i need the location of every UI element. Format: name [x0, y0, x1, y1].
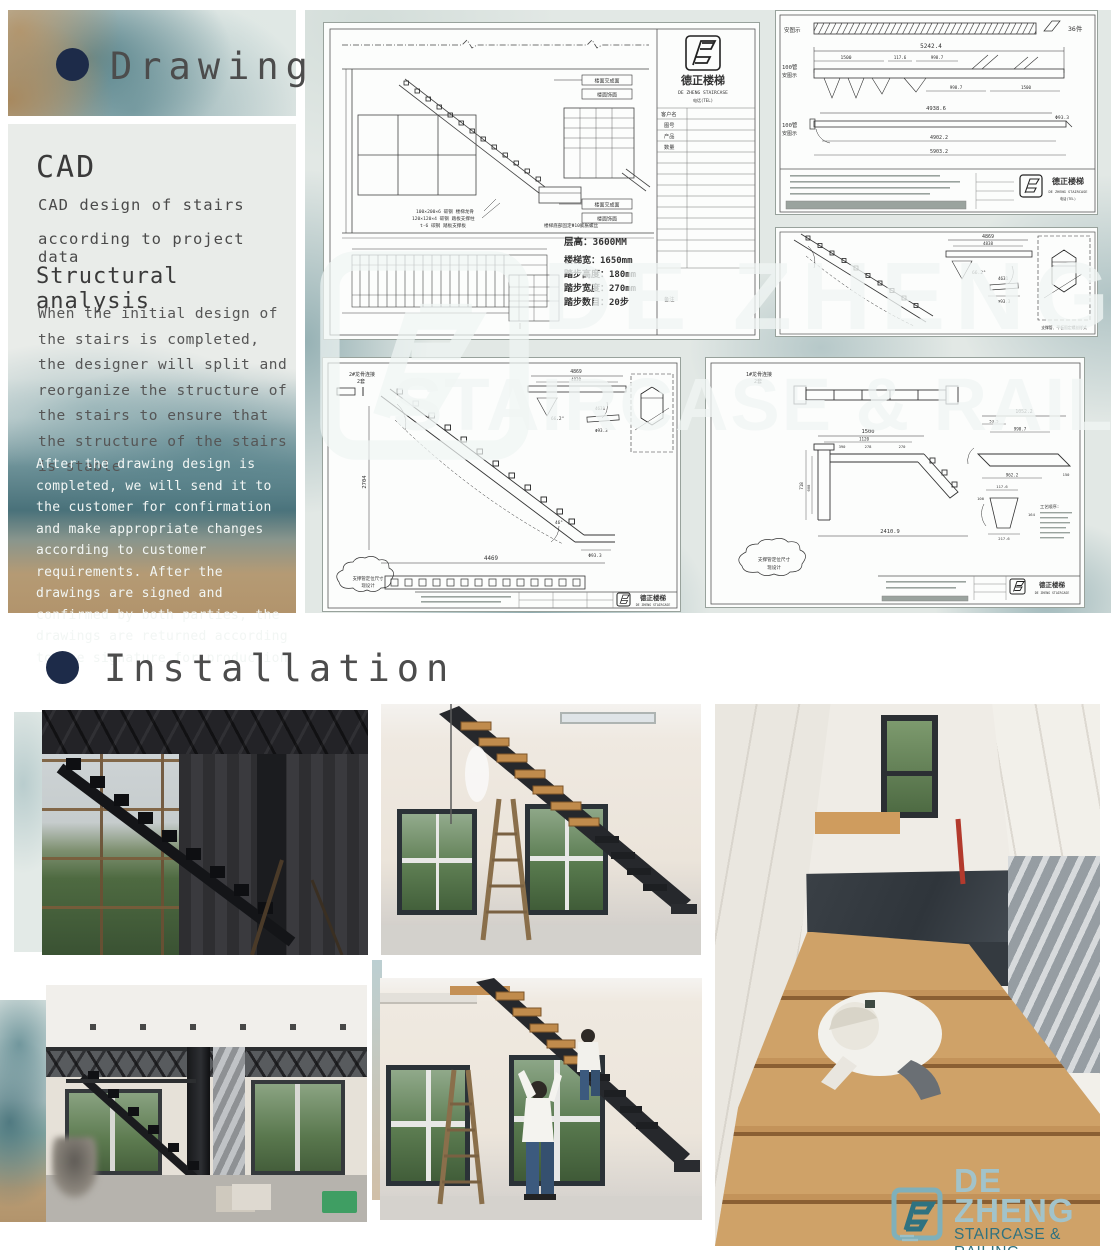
svg-text:电话(TEL): 电话(TEL)	[693, 97, 713, 103]
sheet-a-specs: 层高：3600MM 楼梯宽：1650mm 踏步高度：180mm 踏步宽度：270…	[564, 236, 637, 308]
svg-text:2套: 2套	[357, 378, 365, 385]
svg-text:客户名: 客户名	[661, 110, 677, 118]
sheet-c-linework: 4869 4838 66.2° 4631 Φ93.3 支撑管、平板固定螺丝样式	[776, 228, 1099, 338]
green-basket	[322, 1191, 357, 1212]
cad-sheet-stringer-big: 2#龙骨连接 2套 2704	[322, 357, 681, 612]
sheet-e-cloud: 支撑管定位尺寸 现设计	[739, 538, 806, 575]
svg-text:支撑管定位尺寸: 支撑管定位尺寸	[353, 575, 384, 582]
cad-sheet-members: 安图示 36件 100管 安图示 5242.4 1500 117.6 998.7	[775, 10, 1098, 215]
svg-text:4838: 4838	[983, 241, 994, 246]
watercolor-strip-top	[14, 712, 44, 952]
svg-text:150: 150	[1063, 472, 1071, 477]
stair-stringer-graphic	[381, 704, 701, 955]
svg-text:117.6: 117.6	[894, 55, 907, 60]
svg-text:100: 100	[977, 496, 985, 501]
svg-text:1500: 1500	[1021, 85, 1032, 90]
svg-text:现设计: 现设计	[767, 564, 781, 571]
svg-text:100管: 100管	[782, 63, 798, 71]
svg-text:踏步高度：180mm: 踏步高度：180mm	[564, 268, 637, 280]
sheet-b-logo: 德正楼梯 DE ZHENG STAIRCASE 电话(TEL)	[1020, 175, 1087, 201]
sheet-c-detail-box: 支撑管、平板固定螺丝样式	[1038, 236, 1090, 330]
svg-text:217.6: 217.6	[998, 536, 1010, 541]
cad-subline-2: according to project data	[38, 230, 296, 266]
svg-text:楼面饰面: 楼面饰面	[597, 216, 617, 223]
svg-text:产品: 产品	[664, 132, 674, 140]
installer-figure	[715, 704, 1100, 1246]
cad-sheets-area: 德正楼梯 DE ZHENG STAIRCASE 电话(TEL) 客户名	[305, 10, 1111, 613]
svg-text:支撑管、平板固定螺丝样式: 支撑管、平板固定螺丝样式	[1041, 325, 1087, 330]
svg-text:4469: 4469	[484, 556, 498, 562]
svg-text:踏步宽度：270mm: 踏步宽度：270mm	[564, 282, 637, 294]
svg-text:4830: 4830	[571, 377, 582, 382]
svg-text:DE ZHENG STAIRCASE: DE ZHENG STAIRCASE	[1049, 190, 1088, 194]
cad-heading: CAD	[36, 150, 96, 185]
svg-text:Φ93.3: Φ93.3	[588, 553, 602, 559]
drawing-section-title: Drawing	[110, 45, 315, 88]
svg-text:Φ93.3: Φ93.3	[595, 428, 608, 433]
svg-text:支撑管定位尺寸: 支撑管定位尺寸	[758, 556, 791, 563]
svg-text:电话(TEL): 电话(TEL)	[1060, 196, 1076, 201]
stair-and-workers-graphic	[380, 978, 702, 1220]
svg-text:4902.2: 4902.2	[930, 135, 948, 141]
photo-stair-install-room	[381, 704, 701, 955]
sheet-a-titleblock: 德正楼梯 DE ZHENG STAIRCASE 电话(TEL) 客户名	[657, 36, 755, 303]
svg-text:270: 270	[899, 444, 907, 449]
svg-text:安图示: 安图示	[782, 72, 797, 79]
svg-text:DE ZHENG STAIRCASE: DE ZHENG STAIRCASE	[678, 90, 728, 96]
cad-sheet-stringer-small: 4869 4838 66.2° 4631 Φ93.3 支撑管、平板固定螺丝样式	[775, 227, 1098, 337]
svg-text:998.7: 998.7	[950, 85, 963, 90]
sheet-a-plan	[342, 249, 559, 329]
svg-text:德正楼梯: 德正楼梯	[640, 593, 667, 602]
svg-text:66.2°: 66.2°	[972, 270, 986, 276]
photo-wood-stairs-topview	[715, 704, 1100, 1246]
svg-text:998.7: 998.7	[1014, 427, 1027, 432]
cad-text-panel: CAD CAD design of stairs according to pr…	[8, 124, 296, 613]
svg-text:数量: 数量	[664, 143, 674, 151]
worker-on-stairs	[577, 1029, 601, 1100]
svg-text:图号: 图号	[664, 122, 674, 129]
sheet-e-titleblock: 德正楼梯 DE ZHENG STAIRCASE	[878, 576, 1080, 601]
svg-text:962.2: 962.2	[1006, 473, 1019, 478]
svg-text:4869: 4869	[982, 234, 994, 240]
sheet-d-detail-box	[631, 374, 673, 452]
sheet-a-notes: 100×200×6 碳钢 楼梯龙骨 120×120×4 碳钢 踏板支撑柱 t-6…	[412, 199, 599, 229]
svg-text:718: 718	[799, 482, 804, 490]
brand-name: DE ZHENG	[954, 1166, 1108, 1226]
svg-text:楼面交成面: 楼面交成面	[594, 78, 619, 85]
cad-sheet-brackets: 1#龙骨连接 2套 1500 1120 390 278 270	[705, 357, 1085, 608]
sheet-d-titleblock: 德正楼梯 DE ZHENG STAIRCASE	[415, 592, 677, 608]
brand-tagline: STAIRCASE & RAILING	[954, 1226, 1108, 1250]
bullet-dot-icon	[46, 651, 79, 684]
svg-text:楼梯底部固定Φ10膨胀螺丝: 楼梯底部固定Φ10膨胀螺丝	[544, 222, 599, 229]
sheet-a-floor-labels: 楼面交成面 楼面饰面 楼面交成面 楼面饰面	[554, 75, 632, 223]
bullet-dot-icon	[56, 48, 89, 81]
sheet-e-bracket	[814, 444, 958, 520]
svg-text:Φ93.3: Φ93.3	[998, 299, 1011, 304]
svg-text:德正楼梯: 德正楼梯	[1039, 580, 1066, 589]
svg-text:Φ93.3: Φ93.3	[1055, 115, 1069, 121]
svg-text:楼梯宽：1650mm: 楼梯宽：1650mm	[564, 254, 633, 266]
svg-text:66.2°: 66.2°	[551, 416, 564, 422]
svg-text:安图示: 安图示	[782, 130, 797, 137]
svg-text:100管: 100管	[782, 121, 798, 129]
page: Drawing CAD CAD design of stairs accordi…	[0, 0, 1111, 1250]
svg-text:DE ZHENG STAIRCASE: DE ZHENG STAIRCASE	[636, 603, 671, 607]
svg-text:5242.4: 5242.4	[920, 43, 942, 50]
svg-text:278: 278	[865, 444, 873, 449]
sheet-e-process-notes: 工艺顺序:	[1040, 503, 1072, 538]
brand-logo-glyph	[890, 1184, 946, 1244]
svg-text:4869: 4869	[570, 369, 582, 375]
svg-text:安图示: 安图示	[784, 26, 801, 34]
photo-steel-stringer-window	[42, 710, 368, 955]
photo-workers-installing	[380, 978, 702, 1220]
svg-text:53.5: 53.5	[989, 419, 998, 424]
svg-text:备注: 备注	[664, 295, 674, 303]
sheet-d-linework: 2#龙骨连接 2套 2704	[323, 358, 682, 613]
photo-steel-structure-interior	[46, 985, 367, 1222]
svg-text:120×120×4 碳钢 踏板支撑柱: 120×120×4 碳钢 踏板支撑柱	[412, 215, 475, 222]
svg-text:1500: 1500	[840, 55, 851, 61]
svg-text:2套: 2套	[754, 378, 762, 385]
svg-text:1052.2: 1052.2	[1015, 409, 1032, 415]
svg-text:德正楼梯: 德正楼梯	[680, 73, 725, 87]
svg-text:层高：3600MM: 层高：3600MM	[564, 236, 627, 248]
footer-brand-logo: DE ZHENG STAIRCASE & RAILING	[890, 1183, 1108, 1245]
svg-text:1120: 1120	[859, 437, 870, 442]
svg-text:100×200×6 碳钢 楼梯龙骨: 100×200×6 碳钢 楼梯龙骨	[416, 208, 474, 215]
svg-text:2410.9: 2410.9	[880, 529, 899, 535]
svg-text:2704: 2704	[362, 475, 368, 489]
svg-text:工艺顺序:: 工艺顺序:	[1040, 503, 1059, 510]
worker-reaching	[518, 1070, 562, 1200]
svg-text:楼面交成面: 楼面交成面	[594, 202, 619, 209]
svg-text:117.6: 117.6	[996, 484, 1008, 489]
sheet-a-linework: 德正楼梯 DE ZHENG STAIRCASE 电话(TEL) 客户名	[324, 23, 761, 341]
svg-text:36件: 36件	[1068, 24, 1083, 33]
svg-text:998.7: 998.7	[931, 55, 944, 60]
cad-sheet-main: 德正楼梯 DE ZHENG STAIRCASE 电话(TEL) 客户名	[323, 22, 760, 340]
svg-text:德正楼梯: 德正楼梯	[1052, 176, 1084, 186]
svg-text:46°: 46°	[555, 520, 563, 526]
sheet-e-linework: 1#龙骨连接 2套 1500 1120 390 278 270	[706, 358, 1086, 609]
svg-text:楼面饰面: 楼面饰面	[597, 92, 617, 99]
sheet-b-notes-sim	[786, 173, 1014, 209]
svg-text:t-6 碳钢 踏板支撑板: t-6 碳钢 踏板支撑板	[420, 222, 466, 229]
svg-text:踏步数目：20步: 踏步数目：20步	[564, 296, 629, 308]
svg-text:2#龙骨连接: 2#龙骨连接	[349, 371, 375, 378]
svg-text:现设计: 现设计	[361, 582, 375, 589]
svg-text:4631: 4631	[998, 276, 1009, 281]
svg-text:164: 164	[1028, 512, 1036, 517]
sheet-b-linework: 安图示 36件 100管 安图示 5242.4 1500 117.6 998.7	[776, 11, 1099, 216]
svg-text:608: 608	[806, 484, 811, 492]
svg-text:4631: 4631	[595, 406, 606, 411]
drawing-header-banner: Drawing	[8, 10, 296, 116]
watercolor-strip-left	[0, 1000, 48, 1222]
installation-section-title: Installation	[104, 647, 455, 690]
svg-text:1500: 1500	[862, 429, 875, 435]
cad-subline-1: CAD design of stairs	[38, 196, 245, 214]
stair-stringer-graphic	[42, 710, 368, 955]
svg-text:4938.6: 4938.6	[926, 106, 946, 112]
blurred-figure	[52, 1137, 97, 1218]
confirmation-paragraph: After the drawing design is completed, w…	[36, 454, 292, 669]
svg-text:390: 390	[839, 444, 847, 449]
svg-text:DE ZHENG STAIRCASE: DE ZHENG STAIRCASE	[1035, 591, 1070, 595]
svg-text:5903.2: 5903.2	[930, 149, 948, 155]
svg-text:1#龙骨连接: 1#龙骨连接	[746, 371, 772, 378]
boxes	[232, 1184, 271, 1210]
